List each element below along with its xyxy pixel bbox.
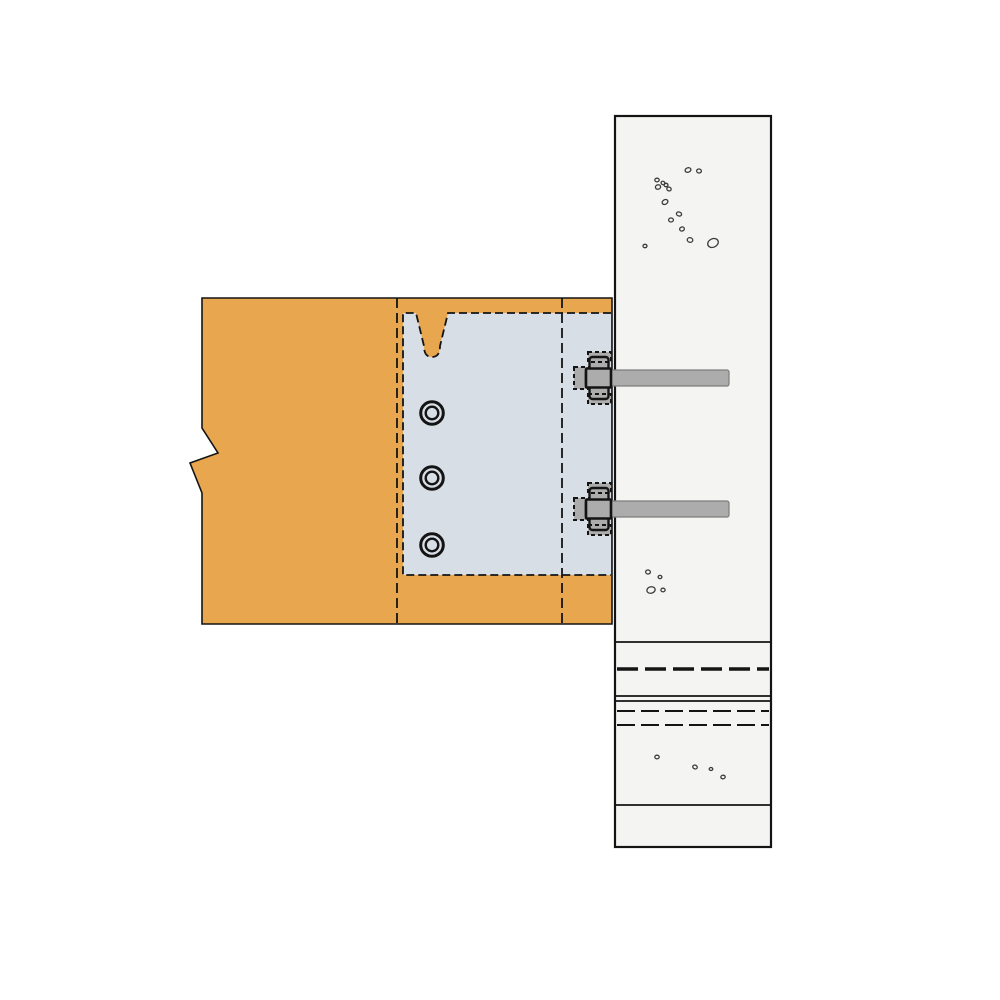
drawing-canvas — [0, 0, 1000, 1000]
hex-nut-body — [586, 369, 611, 388]
concrete-column — [615, 116, 771, 847]
connection-detail-svg — [0, 0, 1000, 1000]
hex-nut-body — [586, 500, 611, 519]
column-body — [615, 116, 771, 847]
